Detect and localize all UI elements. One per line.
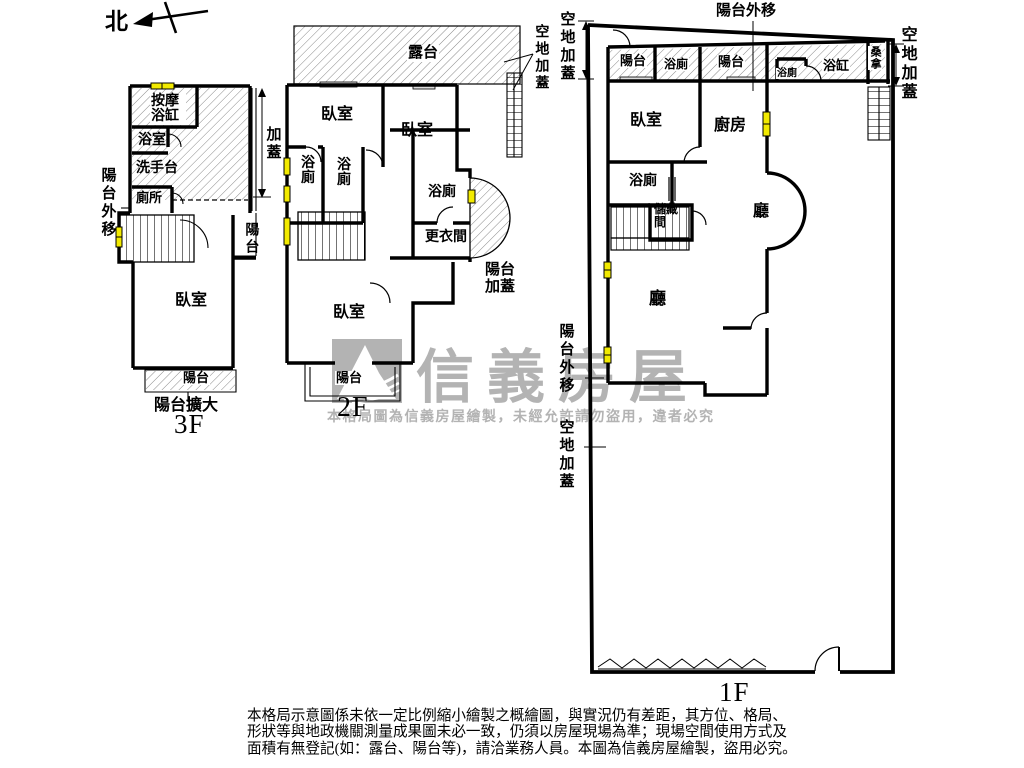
- room-label-bath-b-1f: 浴廁: [776, 68, 798, 79]
- room-label-bathroom-3f: 浴室: [138, 133, 166, 148]
- disclaimer-line-1: 本格局示意圖係未依一定比例縮小繪製之概繪圖，與實況仍有差距，其方位、格局、: [247, 708, 797, 724]
- room-label-bath3-2f: 浴廁: [428, 185, 456, 200]
- annotation-balcony-out-1f-left: 陽台外移: [557, 323, 574, 395]
- room-label-bedroom-3f: 臥室: [175, 292, 207, 310]
- annotation-add-cover-3f: 加蓋: [264, 126, 281, 162]
- disclaimer-text: 本格局示意圖係未依一定比例縮小繪製之概繪圖，與實況仍有差距，其方位、格局、 形狀…: [247, 708, 797, 757]
- room-label-bedroom2-2f: 臥室: [401, 122, 433, 140]
- annotation-balcony-out-3f: 陽台外移: [99, 167, 116, 239]
- floor-label-2f: 2F: [337, 393, 369, 424]
- room-label-bath-c-1f: 浴廁: [629, 174, 657, 189]
- room-label-bath-a-1f: 浴廁: [663, 58, 689, 71]
- disclaimer-line-2: 形狀等與地政機關測量成果圖未必一致，仍須以房屋現場為準；現場空間使用方式及: [247, 724, 797, 740]
- disclaimer-line-3: 面積有無登記(如：露台、陽台等)，請洽業務人員。本圖為信義房屋繪製，盜用必究。: [247, 741, 797, 757]
- annotation-open-land-cover-1f-bottomleft: 空地加蓋: [557, 419, 574, 491]
- north-label: 北: [105, 9, 128, 34]
- room-label-hall-lower-1f: 廳: [649, 290, 666, 309]
- floor-2f-drawing: [284, 26, 533, 401]
- annotation-balcony-cover-2f: 陽台加蓋: [485, 262, 519, 295]
- room-label-hall-upper-1f: 廳: [753, 203, 769, 221]
- room-label-bathtub-1f: 浴缸: [822, 59, 850, 73]
- room-label-washbasin: 洗手台: [136, 161, 178, 176]
- room-label-bedroom-1f: 臥室: [630, 112, 662, 130]
- room-label-storage-1f: 儲藏間: [654, 203, 682, 229]
- north-arrow-icon: [133, 2, 208, 33]
- room-label-balcony-right-3f: 陽台: [243, 222, 258, 256]
- room-label-roof-terrace: 露台: [407, 45, 439, 62]
- room-label-kitchen-1f: 廚房: [714, 117, 746, 135]
- room-label-sauna-1f: 桑拿: [868, 46, 882, 70]
- annotation-open-land-cover-2f: 空地加蓋: [533, 24, 548, 92]
- room-label-bedroom1-2f: 臥室: [321, 106, 353, 124]
- room-label-dressing-room: 更衣間: [425, 230, 467, 245]
- room-label-bedroom3-2f: 臥室: [333, 304, 365, 322]
- room-label-balcony-bottom-3f: 陽台: [182, 371, 210, 385]
- room-label-balcony-b-1f: 陽台: [717, 55, 745, 69]
- room-label-bath2-2f: 浴廁: [337, 158, 353, 189]
- room-label-balcony-a-1f: 陽台: [619, 54, 647, 68]
- floor-label-3f: 3F: [174, 410, 205, 440]
- room-label-toilet: 廁所: [136, 191, 162, 205]
- annotation-balcony-out-1f-top: 陽台外移: [716, 3, 776, 20]
- room-label-bath1-2f: 浴廁: [301, 156, 317, 187]
- floor-label-1f: 1F: [719, 678, 750, 708]
- floorplan-page: 信義房屋 本格局圖為信義房屋繪製，未經允許請勿盜用，違者必究: [0, 0, 1024, 768]
- annotation-open-land-cover-1f-right: 空地加蓋: [898, 26, 916, 102]
- annotation-open-land-cover-1f-topleft: 空地加蓋: [558, 11, 575, 83]
- room-label-massage-tub: 按摩浴缸: [150, 94, 186, 125]
- room-label-balcony-bottom-2f: 陽台: [335, 371, 363, 385]
